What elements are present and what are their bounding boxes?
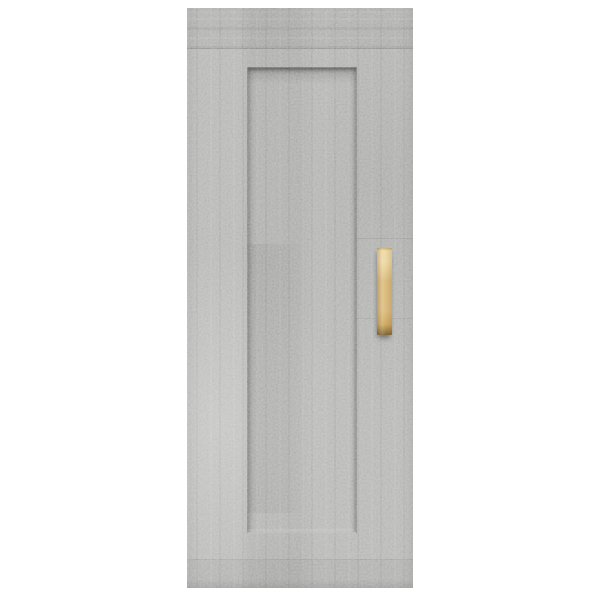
- texture-seam: [355, 238, 413, 239]
- product-photo: [0, 0, 600, 600]
- cabinet-top-rail: [187, 8, 413, 49]
- door-handle: [377, 248, 392, 335]
- panel-texture-streak: [248, 244, 304, 513]
- cabinet-door: [187, 8, 413, 588]
- door-recessed-panel: [247, 67, 357, 533]
- cabinet-bottom-rail: [187, 560, 413, 588]
